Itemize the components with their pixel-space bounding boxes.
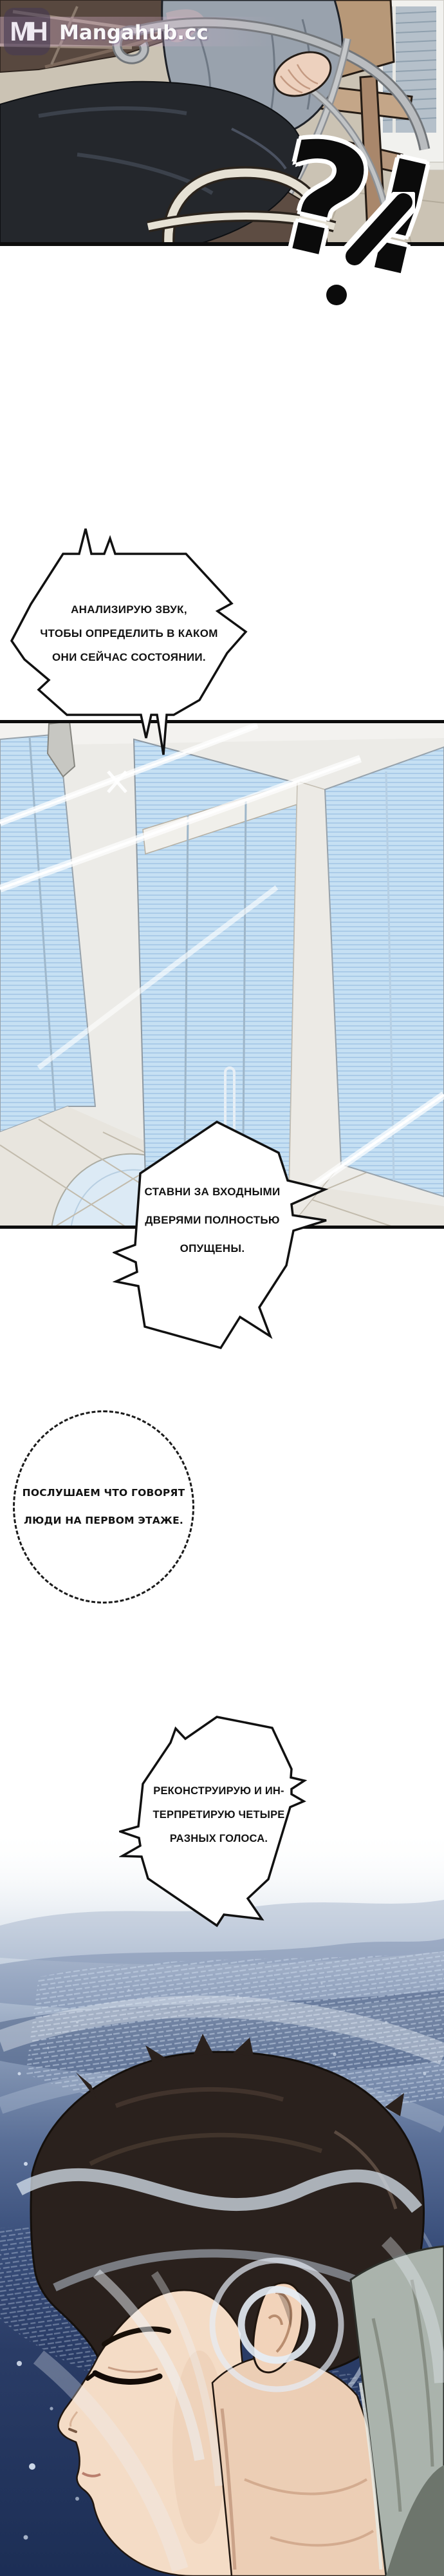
watermark-site-name: Mangahub.cc bbox=[59, 21, 208, 44]
webtoon-page[interactable]: MH Mangahub.cc ?! bbox=[0, 0, 444, 2576]
speech-bubble-voices: РЕКОНСТРУИРУЮ И ИН- ТЕРПРЕТИРУЮ ЧЕТЫРЕ Р… bbox=[119, 1712, 312, 1934]
bubble-line: АНАЛИЗИРУЮ ЗВУК, bbox=[71, 598, 187, 621]
bubble-line: СТАВНИ ЗА ВХОДНЫМИ bbox=[145, 1178, 281, 1206]
watermark-logo-icon: MH bbox=[4, 8, 50, 55]
bubble-line: ЛЮДИ НА ПЕРВОМ ЭТАЖЕ. bbox=[24, 1507, 183, 1535]
bubble-line: ДВЕРЯМИ ПОЛНОСТЬЮ bbox=[145, 1206, 280, 1235]
speech-bubble-shutters: СТАВНИ ЗА ВХОДНЫМИ ДВЕРЯМИ ПОЛНОСТЬЮ ОПУ… bbox=[113, 1117, 335, 1357]
speech-bubble-analyze: АНАЛИЗИРУЮ ЗВУК, ЧТОБЫ ОПРЕДЕЛИТЬ В КАКО… bbox=[5, 527, 251, 769]
bubble-line: ОНИ СЕЙЧАС СОСТОЯНИИ. bbox=[52, 645, 206, 669]
watermark-initials: MH bbox=[10, 16, 44, 47]
bubble-line: РАЗНЫХ ГОЛОСА. bbox=[170, 1827, 268, 1851]
glass-right bbox=[325, 747, 444, 1197]
bubble-line: ТЕРПРЕТИРУЮ ЧЕТЫРЕ bbox=[153, 1803, 285, 1827]
bubble-line: ОПУЩЕНЫ. bbox=[180, 1235, 245, 1263]
panel-listening-scene bbox=[0, 1829, 444, 2576]
bubble-line: РЕКОНСТРУИРУЮ И ИН- bbox=[153, 1779, 284, 1803]
sfx-exclamation-stroke bbox=[325, 192, 415, 321]
bubble-line: ЧТОБЫ ОПРЕДЕЛИТЬ В КАКОМ bbox=[40, 621, 217, 645]
bubble-line: ПОСЛУШАЕМ ЧТО ГОВОРЯТ bbox=[23, 1479, 185, 1507]
thought-bubble-listen: ПОСЛУШАЕМ ЧТО ГОВОРЯТ ЛЮДИ НА ПЕРВОМ ЭТА… bbox=[13, 1410, 194, 1604]
